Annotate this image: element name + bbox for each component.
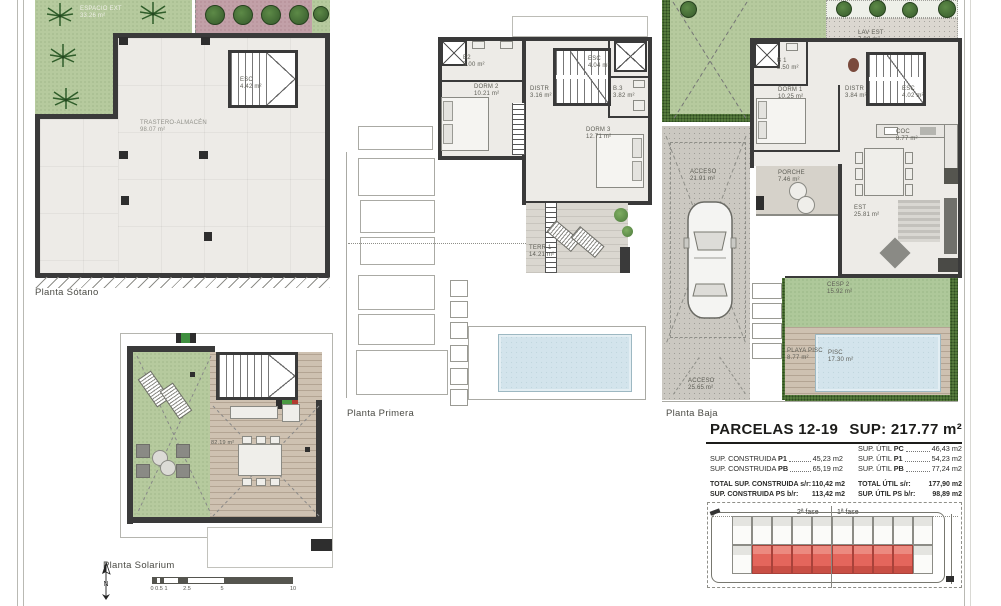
dotted-leader — [906, 451, 930, 452]
garden-cross-lines — [670, 0, 750, 122]
row-sup-construida-pb: SUP. CONSTRUIDA PB 65,19 m2 — [710, 464, 843, 473]
tree-icon — [289, 5, 309, 25]
pillow — [632, 138, 642, 158]
siteplan-road-line — [951, 514, 952, 584]
scale-tick: 0.5 — [155, 586, 163, 592]
neighbor-outline — [358, 126, 433, 150]
room-label-coc: COC8.77 m² — [896, 129, 918, 143]
dotted-leader — [790, 471, 810, 472]
tree-icon — [836, 1, 852, 17]
stair-diagonal — [267, 53, 295, 79]
sheet-frame-line — [17, 0, 18, 606]
dark-block — [946, 576, 954, 582]
siteplan-unit — [913, 516, 933, 545]
room-label-esc-p1: ESC4.04 m² — [588, 56, 610, 70]
chair — [176, 444, 190, 458]
column — [121, 196, 129, 205]
row-construida-ps: SUP. CONSTRUIDA PS b/r: 113,42 m2 — [710, 491, 845, 498]
dark-block — [311, 539, 332, 551]
kitchenette-unit — [282, 404, 300, 422]
step — [752, 343, 782, 359]
siteplan-unit — [913, 545, 933, 574]
fridge-icon — [944, 168, 958, 184]
room-label-dorm1: DORM 110.25 m² — [778, 87, 803, 101]
step-box — [450, 322, 468, 339]
scale-tick: 5 — [220, 586, 223, 592]
column — [199, 151, 208, 159]
row-sup-util-pb: SUP. ÚTIL PB 77,24 m2 — [858, 464, 962, 473]
wall — [958, 38, 962, 278]
dining-table — [864, 148, 904, 196]
sink-icon — [500, 41, 513, 49]
step — [752, 283, 782, 299]
room-label-distr-pb: DISTR3.84 m² — [845, 86, 867, 100]
step-box — [450, 301, 468, 318]
chair — [256, 478, 266, 486]
hob-icon — [920, 127, 936, 135]
siteplan-unit — [732, 545, 752, 574]
siteplan-unit — [893, 516, 913, 545]
step — [752, 323, 782, 339]
scale-segment — [178, 578, 189, 583]
room-label-est: EST25.81 m² — [854, 205, 879, 219]
hedge — [950, 278, 958, 400]
column — [119, 37, 128, 45]
chair — [176, 464, 190, 478]
chair — [905, 152, 913, 164]
scale-tick: 0 — [150, 586, 153, 592]
room-label-b3: B.33.82 m² — [613, 86, 635, 100]
tree-icon — [261, 5, 281, 25]
wall — [35, 114, 118, 119]
siteplan-upper-units — [732, 516, 933, 545]
room-label-distr-p1: DISTR3.16 m² — [530, 86, 552, 100]
wall — [750, 38, 962, 42]
hedge — [662, 0, 670, 122]
wall — [35, 114, 40, 278]
room-label-acceso1: ACCESO21.91 m² — [690, 169, 717, 183]
stair-diagonal — [267, 79, 295, 105]
chair — [242, 436, 252, 444]
tree-icon — [680, 1, 697, 18]
dotted-leader — [789, 461, 811, 462]
person-figure — [848, 58, 859, 72]
step-box — [450, 368, 468, 385]
room-label-playa-pisc: PLAYA PISC8.77 m² — [787, 348, 823, 362]
siteplan-unit — [873, 516, 893, 545]
pillow — [443, 124, 453, 144]
partition — [754, 84, 808, 86]
tree-icon — [205, 5, 225, 25]
sheet-frame-line — [970, 0, 971, 606]
step — [752, 303, 782, 319]
room-label-espacio-ext: ESPACIO EXT33.26 m² — [80, 6, 122, 20]
chair — [270, 436, 280, 444]
solarium-area-label: 82.19 m² — [211, 440, 234, 447]
neighbor-outline — [356, 350, 448, 395]
room-label-porche: PORCHE7.46 m² — [778, 170, 805, 184]
pillow — [758, 121, 767, 139]
plant-icon — [614, 208, 628, 222]
north-arrow-icon: N — [98, 560, 114, 602]
wardrobe-hatch — [512, 103, 525, 155]
partition — [754, 150, 840, 152]
summary-title: PARCELAS 12-19 — [710, 421, 838, 438]
siteplan-unit — [812, 516, 832, 545]
chair — [855, 152, 863, 164]
scale-bar — [152, 577, 293, 584]
basement-floor — [40, 119, 118, 273]
scale-tick: 2.5 — [183, 586, 191, 592]
plant-icon — [622, 226, 633, 237]
plan-title-baja: Planta Baja — [666, 408, 718, 419]
siteplan-unit-highlighted — [772, 545, 792, 574]
wall — [620, 247, 630, 273]
siteplan-unit-highlighted — [853, 545, 873, 574]
tree-icon — [938, 0, 956, 18]
tree-icon — [869, 0, 886, 17]
neighbor-outline — [358, 158, 435, 196]
pillow — [632, 161, 642, 181]
neighbor-outline — [360, 200, 435, 233]
scale-segment — [224, 578, 294, 583]
rear-lawn — [785, 278, 953, 327]
partition — [806, 42, 808, 86]
room-label-b2: B25.00 m² — [463, 55, 485, 69]
tree-icon — [313, 6, 329, 22]
room-label-cesp2: CESP 215.92 m² — [827, 282, 852, 296]
solarium-guide-lines — [127, 346, 327, 524]
chair — [905, 184, 913, 196]
row-util-ps: SUP. ÚTIL PS b/r: 98,89 m2 — [858, 491, 962, 498]
siteplan-unit-highlighted — [873, 545, 893, 574]
row-sup-util-pc: SUP. ÚTIL PC 46,43 m2 — [858, 444, 962, 453]
node-marker — [305, 447, 310, 452]
room-label-esc-pb: ESC4.02 m² — [902, 86, 924, 100]
kitchenette-counter — [230, 406, 278, 419]
room-label-b1: B 13.50 m² — [777, 58, 799, 72]
chair — [136, 464, 150, 478]
room-label-dorm3: DORM 312.71 m² — [586, 127, 611, 141]
svg-text:N: N — [103, 581, 108, 588]
boundary-line — [662, 401, 958, 402]
column — [756, 196, 764, 210]
dotted-leader — [905, 461, 930, 462]
drawing-sheet: ESPACIO EXT33.26 m² ESC4.42 m² TRASTERO-… — [0, 0, 1001, 606]
partition — [838, 85, 840, 152]
chair — [905, 168, 913, 180]
sink-icon — [633, 80, 645, 88]
scale-segment — [153, 578, 157, 583]
room-label-trastero: TRASTERO-ALMACÉN98.07 m² — [140, 120, 207, 134]
room-label-esc-sotano: ESC4.42 m² — [240, 77, 262, 91]
step-box — [450, 280, 468, 297]
siteplan-unit — [832, 516, 852, 545]
tree-icon — [902, 2, 918, 18]
chair — [136, 444, 150, 458]
column — [119, 151, 128, 159]
pillow — [443, 101, 453, 121]
neighbor-outline — [358, 275, 435, 310]
sink-icon — [472, 41, 485, 49]
toilet-icon — [633, 100, 645, 111]
row-total-util: TOTAL ÚTIL s/r: 177,90 m2 — [858, 481, 962, 488]
siteplan-unit-highlighted — [832, 545, 852, 574]
chair — [256, 436, 266, 444]
partition — [608, 76, 650, 78]
rug — [898, 200, 940, 242]
partition — [785, 276, 953, 278]
tree-icon — [233, 5, 253, 25]
wardrobe-icon — [614, 41, 647, 72]
siteplan-lower-units — [732, 545, 933, 574]
wall — [113, 33, 330, 38]
siteplan-unit — [853, 516, 873, 545]
wall — [113, 33, 118, 119]
chair — [855, 168, 863, 180]
room-label-dorm2: DORM 210.21 m² — [474, 84, 499, 98]
porch-edge — [756, 214, 838, 216]
round-table — [160, 460, 176, 476]
siteplan-unit-highlighted — [752, 545, 772, 574]
row-sup-util-p1: SUP. ÚTIL P1 54,23 m2 — [858, 454, 962, 463]
sheet-frame-line — [23, 0, 24, 606]
solar-panel-badge — [176, 333, 196, 343]
plan-title-sotano: Planta Sótano — [35, 287, 99, 298]
row-sup-construida-p1: SUP. CONSTRUIDA P1 45,23 m2 — [710, 454, 843, 463]
sofa — [944, 198, 957, 254]
scale-tick: 1 — [164, 586, 167, 592]
dining-table — [238, 444, 282, 476]
siteplan-unit — [752, 516, 772, 545]
neighbor-outline — [358, 314, 435, 345]
room-label-pisc: PISC17.30 m² — [828, 350, 853, 364]
summary-total-sup: SUP: 217.77 m² — [832, 421, 962, 438]
partition — [442, 80, 526, 82]
roof-outline — [512, 16, 648, 37]
pillow — [758, 101, 767, 119]
siteplan-unit-highlighted — [812, 545, 832, 574]
column — [201, 37, 210, 45]
chair — [855, 184, 863, 196]
staircase — [228, 50, 298, 108]
boundary-line — [346, 152, 347, 398]
step-box — [450, 389, 468, 406]
siteplan-unit — [792, 516, 812, 545]
partition — [608, 116, 650, 118]
dotted-leader — [906, 471, 930, 472]
siteplan-unit — [732, 516, 752, 545]
fase-divider-line — [831, 506, 832, 588]
plan-title-primera: Planta Primera — [347, 408, 414, 419]
room-label-acceso2: ACCESO25.65 m² — [688, 378, 715, 392]
chair — [270, 478, 280, 486]
wall — [325, 33, 330, 278]
wall — [838, 164, 842, 278]
siteplan-unit-highlighted — [893, 545, 913, 574]
node-marker — [190, 372, 195, 377]
neighbor-outline — [360, 237, 435, 265]
chair — [242, 478, 252, 486]
sink-icon — [786, 43, 798, 51]
scale-tick: 10 — [290, 586, 296, 592]
boundary-dashed — [195, 0, 196, 33]
column — [204, 232, 212, 241]
sheet-frame-line — [964, 0, 965, 606]
car-top-view — [682, 198, 738, 322]
siteplan-unit-highlighted — [792, 545, 812, 574]
row-total-construida: TOTAL SUP. CONSTRUIDA s/r: 110,42 m2 — [710, 481, 845, 488]
room-label-terr1: TERR 114.21 m² — [529, 245, 554, 259]
scale-segment — [160, 578, 164, 583]
step-box — [450, 345, 468, 362]
tv-cabinet — [938, 258, 958, 272]
pool — [498, 334, 632, 392]
porch-table — [797, 196, 815, 214]
siteplan-unit — [772, 516, 792, 545]
